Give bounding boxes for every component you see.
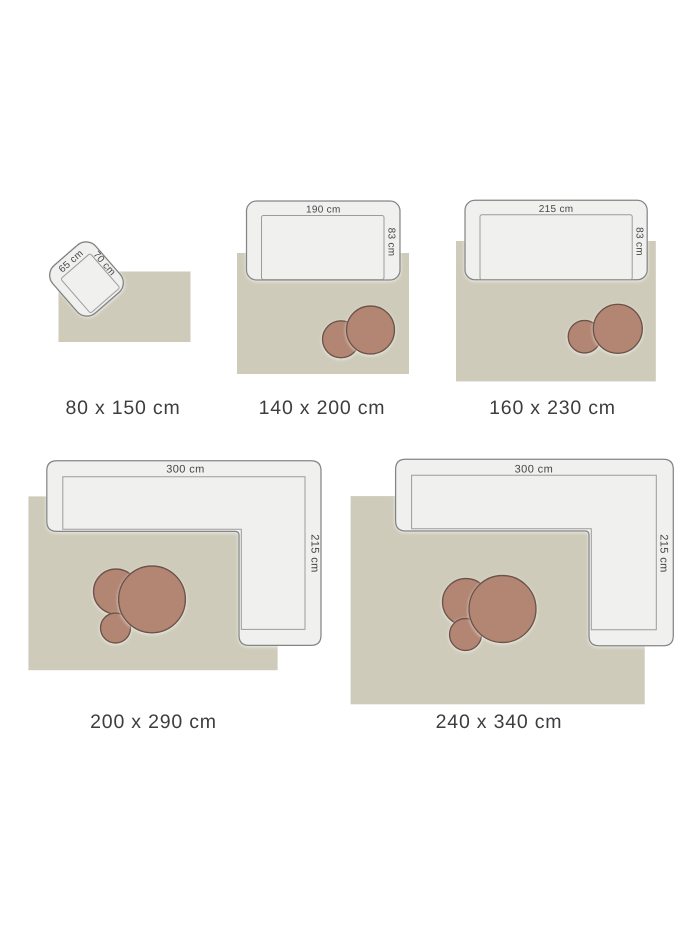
svg-text:80 x 150 cm: 80 x 150 cm [65, 397, 180, 419]
svg-text:140 x 200 cm: 140 x 200 cm [259, 397, 386, 419]
svg-text:215 cm: 215 cm [657, 534, 669, 572]
svg-text:300 cm: 300 cm [515, 464, 553, 476]
svg-text:240 x 340 cm: 240 x 340 cm [436, 711, 563, 733]
svg-text:83 cm: 83 cm [386, 228, 397, 257]
svg-text:200 x 290 cm: 200 x 290 cm [90, 711, 217, 733]
svg-text:215 cm: 215 cm [539, 204, 574, 215]
svg-text:83 cm: 83 cm [633, 227, 644, 256]
svg-text:160 x 230 cm: 160 x 230 cm [489, 397, 616, 419]
svg-text:215 cm: 215 cm [309, 534, 321, 572]
svg-text:190 cm: 190 cm [306, 205, 341, 216]
svg-text:300 cm: 300 cm [166, 464, 204, 476]
